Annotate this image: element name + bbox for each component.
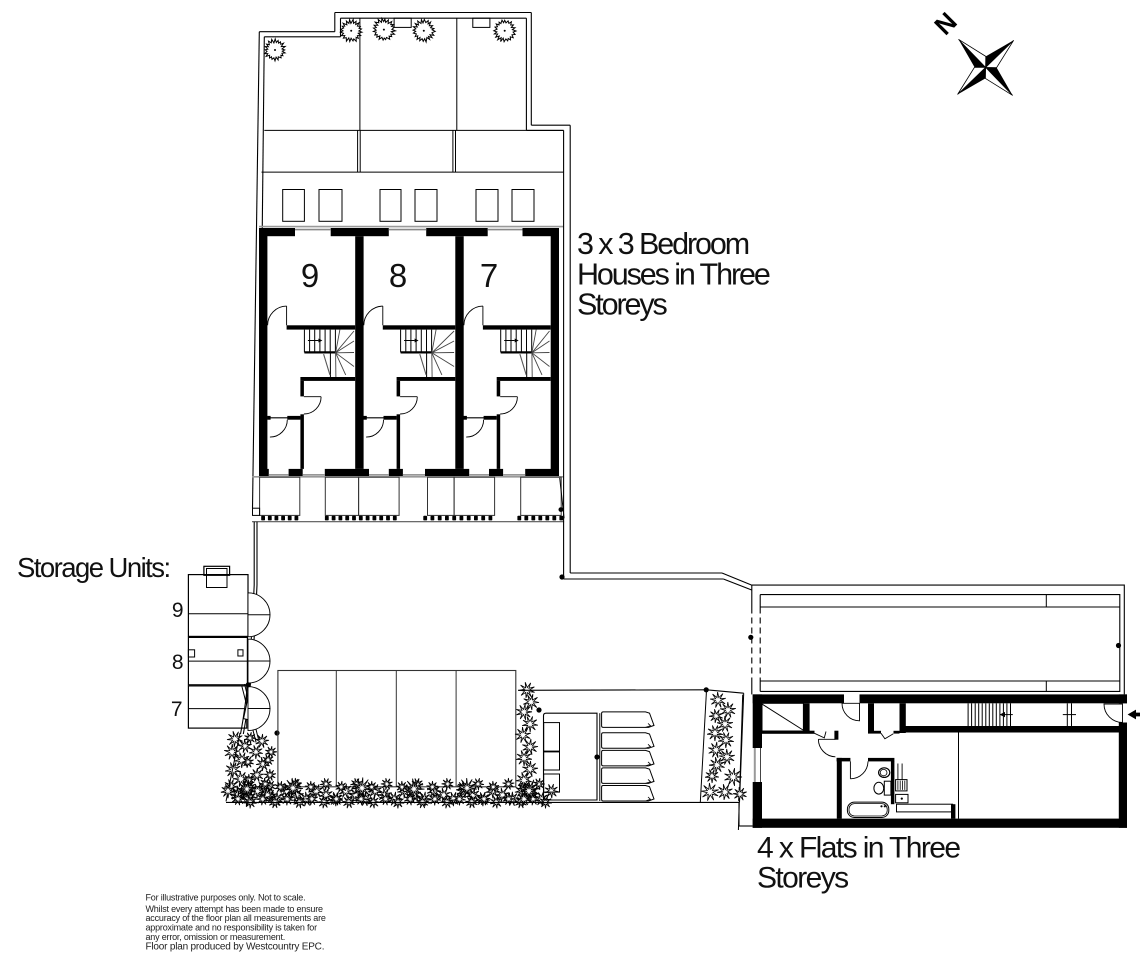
svg-text:9: 9	[301, 257, 319, 294]
svg-text:4 x Flats in Three: 4 x Flats in Three	[757, 831, 960, 864]
svg-text:Houses in Three: Houses in Three	[577, 257, 770, 291]
svg-text:Floor plan produced by Westcou: Floor plan produced by Westcountry EPC.	[146, 941, 325, 952]
svg-text:9: 9	[172, 599, 184, 622]
svg-text:Storeys: Storeys	[577, 288, 668, 322]
svg-text:Storage Units:: Storage Units:	[17, 552, 170, 583]
svg-text:7: 7	[171, 698, 183, 721]
svg-text:For illustrative purposes only: For illustrative purposes only. Not to s…	[146, 893, 306, 903]
svg-text:7: 7	[480, 257, 498, 294]
svg-text:Storeys: Storeys	[757, 862, 848, 895]
svg-text:8: 8	[172, 651, 184, 674]
svg-text:3 x 3 Bedroom: 3 x 3 Bedroom	[577, 227, 749, 261]
svg-text:8: 8	[389, 257, 407, 294]
